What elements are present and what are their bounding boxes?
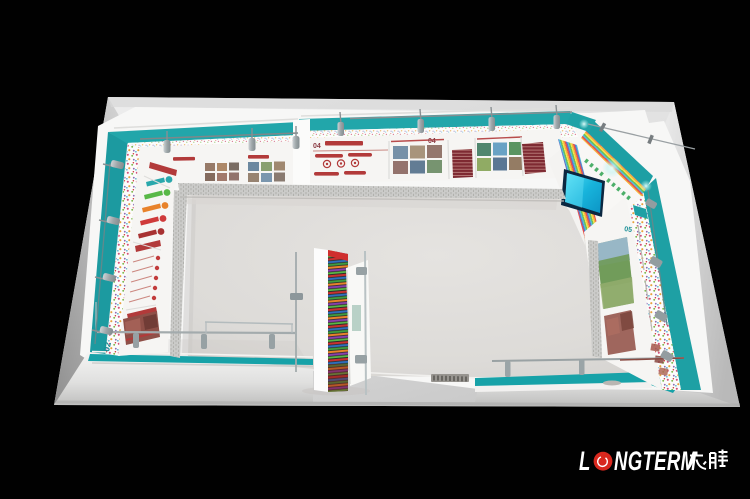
svg-text:05: 05 xyxy=(624,226,633,234)
svg-text:L: L xyxy=(579,446,590,476)
svg-text:NGTERM: NGTERM xyxy=(614,446,697,476)
svg-text:04: 04 xyxy=(313,143,321,150)
svg-text:04: 04 xyxy=(428,138,436,145)
